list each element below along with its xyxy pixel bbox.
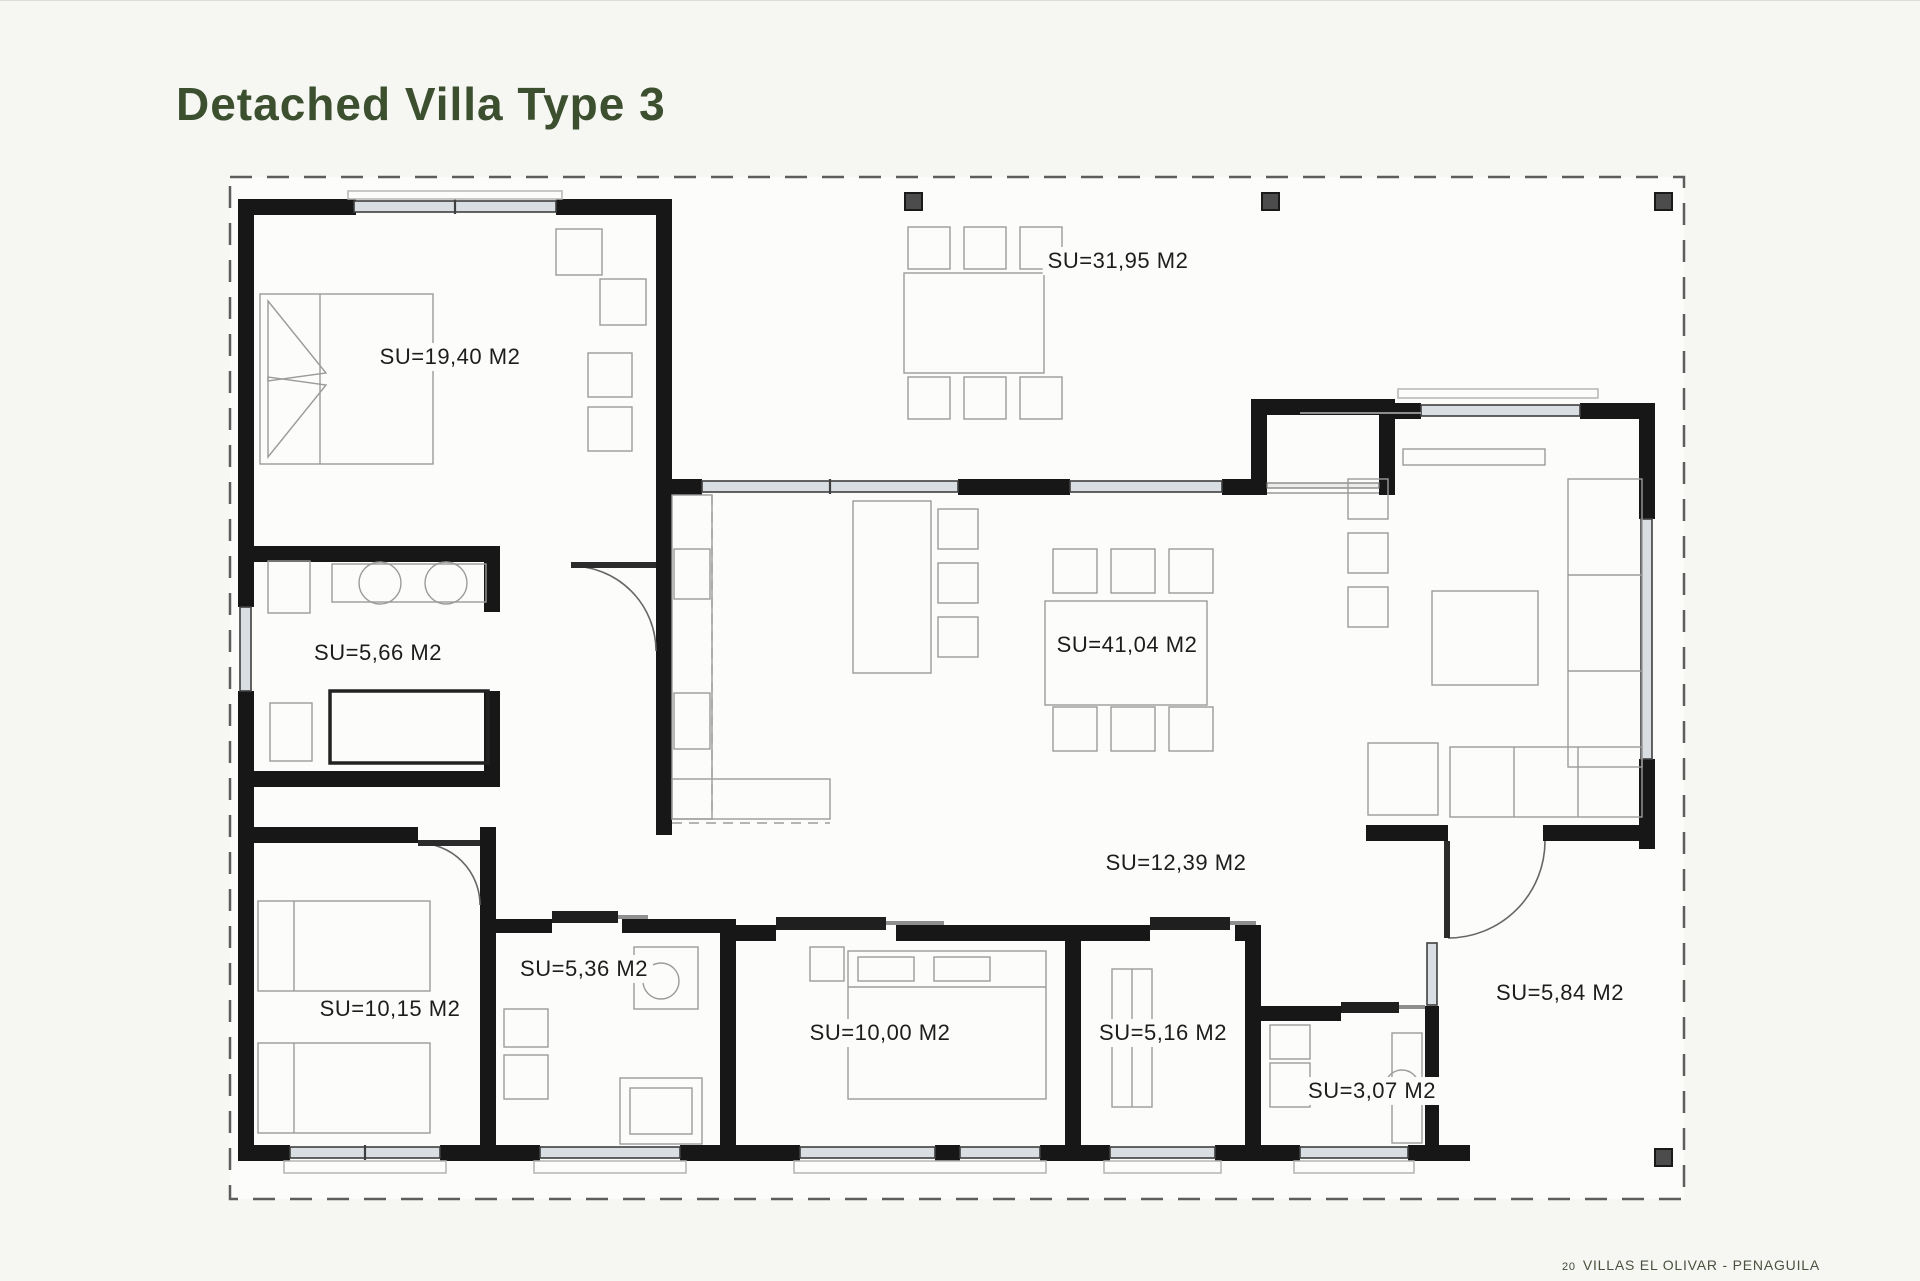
room-label-bedroom-3: SU=10,00 M2 xyxy=(805,1019,956,1047)
footer-credit: 20VILLAS EL OLIVAR - PENAGUILA xyxy=(1562,1257,1820,1273)
room-label-bedroom-4: SU=5,16 M2 xyxy=(1094,1019,1232,1047)
plot-boundary xyxy=(230,177,1684,1199)
floor-plan-page: Detached Villa Type 3 xyxy=(0,0,1920,1281)
room-label-terrace: SU=31,95 M2 xyxy=(1043,247,1194,275)
project-name: VILLAS EL OLIVAR - PENAGUILA xyxy=(1583,1257,1820,1273)
page-number: 20 xyxy=(1562,1261,1576,1273)
room-label-hallway: SU=12,39 M2 xyxy=(1101,849,1252,877)
floor-plan-drawing xyxy=(0,1,1920,1281)
room-label-dressing-laundry: SU=5,66 M2 xyxy=(309,639,447,667)
room-label-main-bedroom: SU=19,40 M2 xyxy=(375,343,526,371)
room-label-bathroom-1: SU=5,36 M2 xyxy=(515,955,653,983)
room-label-kitchen-living-dining: SU=41,04 M2 xyxy=(1052,631,1203,659)
room-label-bathroom-2: SU=3,07 M2 xyxy=(1303,1077,1441,1105)
room-label-porch: SU=5,84 M2 xyxy=(1491,979,1629,1007)
room-label-bedroom-2: SU=10,15 M2 xyxy=(315,995,466,1023)
